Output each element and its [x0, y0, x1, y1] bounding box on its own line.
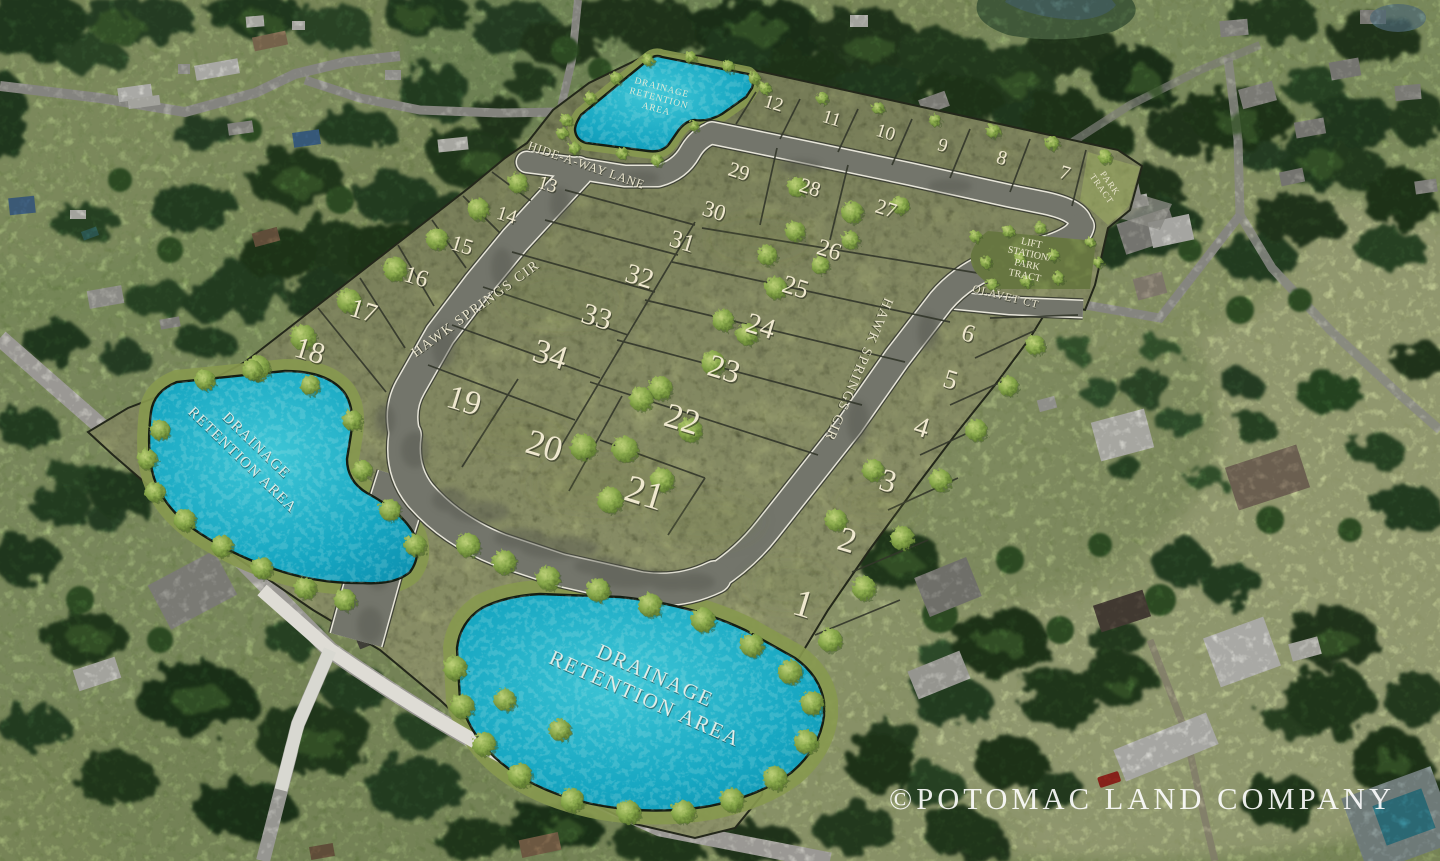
svg-text:©POTOMAC LAND COMPANY: ©POTOMAC LAND COMPANY — [889, 782, 1395, 816]
